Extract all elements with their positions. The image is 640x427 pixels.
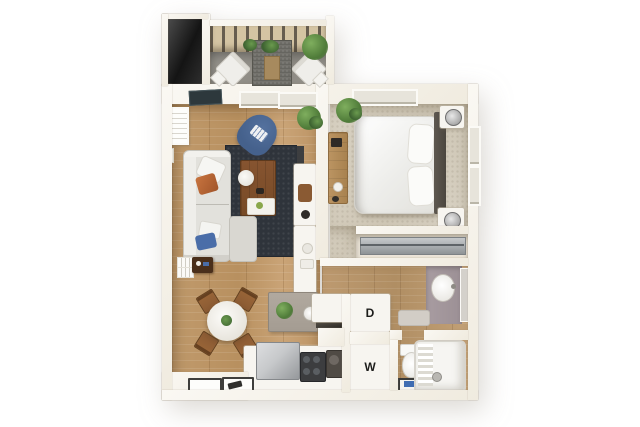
range-silver	[256, 342, 300, 380]
wall-closet-north	[356, 226, 468, 234]
wall-laundry-mid	[350, 332, 390, 344]
peninsula-dish	[302, 243, 313, 254]
wall-bath-west	[390, 340, 398, 390]
floorplan-image: D W	[0, 0, 640, 427]
table-plate	[238, 170, 254, 186]
console-tray	[298, 184, 312, 202]
privacy-planter	[264, 56, 280, 80]
washer-label: W	[364, 360, 375, 374]
living-window-dark	[189, 89, 223, 106]
bedroom-window-east-1	[468, 126, 481, 166]
entry-shaft-opening	[168, 18, 202, 84]
bedroom-door-nook-carpet	[330, 226, 358, 260]
burner-2	[313, 356, 320, 363]
closet-shelf	[360, 237, 466, 255]
burner-1	[303, 356, 310, 363]
console-decor	[301, 210, 310, 219]
shaft-wall-top	[162, 14, 208, 19]
kitchen-sink-bowl	[329, 355, 339, 365]
dining-centerpiece-plant	[221, 315, 232, 326]
living-corner-plant-leaf	[309, 116, 323, 129]
desk-laptop	[331, 138, 342, 147]
desk-cup	[333, 182, 343, 192]
sofa-chaise	[229, 216, 257, 262]
wall-bedroom-south	[320, 258, 468, 266]
wall-left	[162, 84, 172, 400]
wall-bath-north-right	[424, 330, 468, 340]
vanity-faucet	[451, 284, 456, 289]
bedroom-window-east-2	[468, 166, 481, 206]
apartment-floorplan: D W	[0, 0, 640, 427]
wall-kitchen-back	[318, 328, 344, 346]
desk-decor	[332, 196, 339, 202]
tray-garnish	[256, 202, 263, 209]
bathtub-ridges	[418, 344, 433, 386]
wall-bath-north-left	[390, 330, 402, 340]
balcony-door-1	[239, 91, 280, 108]
balcony-plant-large	[302, 34, 328, 60]
peninsula-dish-2	[300, 259, 314, 269]
balcony-wall-left	[202, 14, 210, 84]
closet-rod	[360, 244, 464, 246]
balcony-plant-small	[243, 39, 257, 51]
burner-4	[313, 368, 320, 375]
table-decor	[256, 188, 264, 194]
bedroom-window-north	[352, 89, 418, 106]
bed-pillow-2	[407, 165, 436, 207]
tub-faucet	[432, 372, 442, 382]
lamp-top	[445, 109, 462, 126]
island-plant	[276, 302, 293, 319]
side-table-decor-blue	[203, 262, 209, 266]
shaft-wall-left	[162, 14, 168, 86]
sofa-seam	[196, 204, 229, 205]
bed-pillow-1	[407, 123, 436, 165]
wall-bottom	[162, 390, 478, 400]
side-table-decor	[196, 261, 201, 266]
washer-unit: W	[348, 344, 392, 390]
dryer-label: D	[366, 306, 375, 320]
vanity-mat	[398, 310, 430, 326]
bedroom-plant-leaf	[349, 108, 362, 120]
privacy-plant	[261, 40, 279, 53]
burner-3	[303, 368, 310, 375]
dryer-unit: D	[350, 294, 390, 332]
balcony-rail-top	[210, 20, 326, 26]
